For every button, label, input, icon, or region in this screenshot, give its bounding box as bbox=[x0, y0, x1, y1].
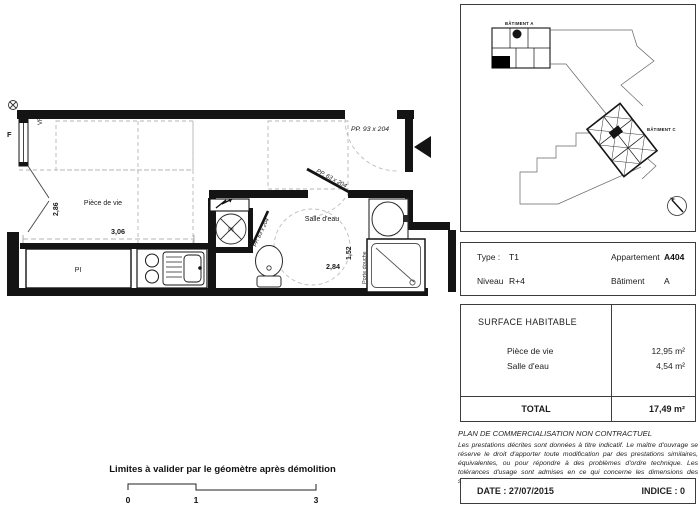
surface-row-value: 4,54 m² bbox=[656, 361, 685, 371]
window-symbol bbox=[19, 119, 49, 232]
entry-arrow-icon bbox=[414, 136, 431, 158]
plan-document: F VR 2,86 Pièce de vie 3,06 PI PI PP. 93… bbox=[0, 0, 700, 508]
geometer-note: Limites à valider par le géomètre après … bbox=[95, 464, 350, 475]
demolition-dashed-lines bbox=[19, 121, 348, 243]
dim-284: 2,84 bbox=[326, 262, 340, 271]
surface-row-value: 12,95 m² bbox=[651, 346, 685, 356]
total-row: TOTAL 17,49 m² bbox=[461, 396, 695, 421]
door-label-pp63-bath: PP. 63 x 204 bbox=[315, 168, 348, 189]
surface-table: SURFACE HABITABLE Pièce de vie 12,95 m² … bbox=[460, 304, 696, 422]
niveau-value: R+4 bbox=[509, 276, 525, 286]
batiment-label: Bâtiment bbox=[611, 276, 645, 286]
appartement-label: Appartement bbox=[611, 252, 660, 262]
apartment-location-highlight bbox=[492, 56, 510, 68]
dim-306: 3,06 bbox=[111, 227, 125, 236]
niveau-label: Niveau bbox=[477, 276, 503, 286]
site-plan: BÂTIMENT A BÂTIMENT C bbox=[460, 4, 696, 232]
washbasin-icon bbox=[369, 199, 408, 239]
building-a-label: BÂTIMENT A bbox=[505, 21, 534, 26]
type-value: T1 bbox=[509, 252, 519, 262]
title-block-footer: DATE : 27/07/2015 INDICE : 0 bbox=[460, 478, 696, 504]
surface-row-label: Salle d'eau bbox=[507, 361, 549, 371]
surface-header: SURFACE HABITABLE bbox=[478, 317, 577, 327]
building-a bbox=[492, 28, 550, 68]
surface-row-label: Pièce de vie bbox=[507, 346, 553, 356]
light-point-icon bbox=[9, 101, 18, 110]
roller-shutter-label: VR bbox=[38, 116, 44, 125]
toilet-icon bbox=[256, 246, 283, 288]
legal-title: PLAN DE COMMERCIALISATION NON CONTRACTUE… bbox=[458, 429, 698, 438]
dim-152: 1,52 bbox=[346, 246, 353, 260]
apartment-info-box: Type : T1 Appartement A404 Niveau R+4 Bâ… bbox=[460, 242, 696, 296]
scale-bar: 0 1 3 bbox=[120, 481, 332, 507]
kitchenette bbox=[137, 249, 207, 288]
room-label-piece-de-vie: Pièce de vie bbox=[84, 200, 122, 207]
type-label: Type : bbox=[477, 252, 500, 262]
floor-plan: F VR 2,86 Pièce de vie 3,06 PI PI PP. 93… bbox=[0, 80, 460, 340]
water-heater-label: PI bbox=[228, 228, 234, 234]
date-value: DATE : 27/07/2015 bbox=[477, 486, 554, 496]
scale-tick-1: 1 bbox=[194, 495, 199, 505]
dim-286: 2,86 bbox=[53, 202, 60, 216]
total-value: 17,49 m² bbox=[649, 404, 685, 414]
electrical-panel-icon bbox=[210, 199, 249, 211]
north-arrow-icon bbox=[668, 197, 687, 216]
closet-label: PI bbox=[75, 267, 82, 274]
shower-door-label: Porte douche bbox=[362, 251, 368, 284]
appartement-value: A404 bbox=[664, 252, 684, 262]
window-label: F bbox=[7, 130, 12, 139]
batiment-value: A bbox=[664, 276, 670, 286]
shower-icon bbox=[367, 239, 425, 292]
dimension-line bbox=[23, 235, 194, 243]
building-c-label: BÂTIMENT C bbox=[647, 127, 676, 132]
building-c bbox=[587, 103, 657, 176]
indice-value: INDICE : 0 bbox=[641, 486, 685, 496]
scale-tick-3: 3 bbox=[314, 495, 319, 505]
scale-tick-0: 0 bbox=[126, 495, 131, 505]
door-label-pp93: PP. 93 x 204 bbox=[351, 126, 389, 133]
room-label-salle-deau: Salle d'eau bbox=[305, 216, 340, 223]
total-label: TOTAL bbox=[461, 404, 611, 414]
